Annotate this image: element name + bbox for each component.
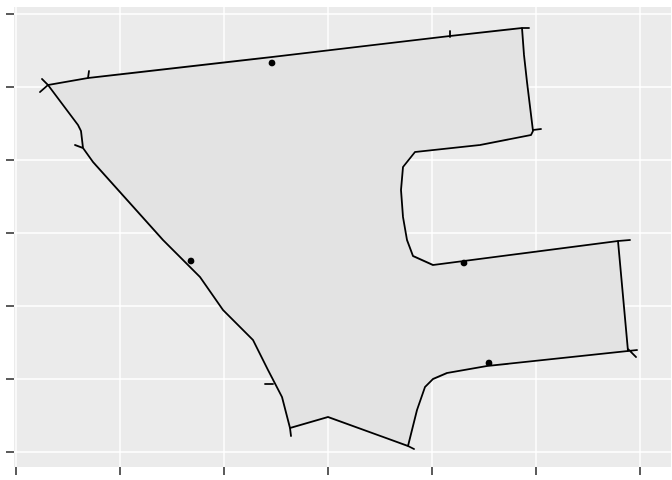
edge-tick-mark (290, 428, 291, 436)
plot-figure (0, 0, 672, 480)
edge-tick-mark (88, 71, 89, 78)
edge-tick-mark (533, 129, 541, 130)
data-point (486, 360, 493, 367)
data-point (269, 60, 276, 67)
data-point (461, 260, 468, 267)
data-point (188, 258, 195, 265)
edge-tick-mark (618, 240, 630, 241)
plot-canvas (0, 0, 672, 480)
